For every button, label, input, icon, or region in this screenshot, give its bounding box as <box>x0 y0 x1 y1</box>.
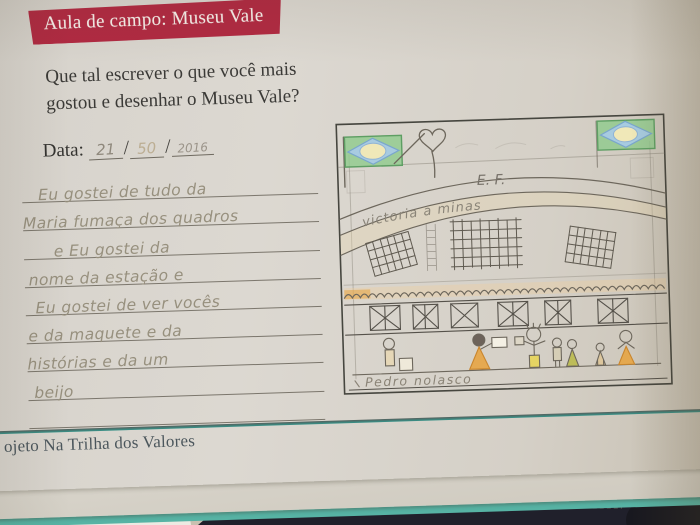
woman-orange-skirt <box>618 330 635 364</box>
person-with-box <box>383 338 413 371</box>
ladder <box>426 224 436 270</box>
date-label: Data: <box>42 139 84 161</box>
question-text: Que tal escrever o que você mais gostou … <box>45 56 300 118</box>
date-field: Data: 21/50/2016 <box>42 134 214 162</box>
brazil-flag-icon <box>343 135 403 187</box>
brazil-flag-icon <box>596 119 655 167</box>
date-year-handwritten: 2016 <box>171 140 214 157</box>
child-green-dress <box>566 339 579 366</box>
chapter-banner: Aula de campo: Museu Vale <box>28 0 282 45</box>
child-figure <box>552 338 562 367</box>
date-day-handwritten: 21 <box>88 140 123 161</box>
woman-orange-dress <box>469 333 508 369</box>
handwritten-essay: Eu gostei de tudo da Maria fumaça dos qu… <box>21 166 325 429</box>
window-grid-center <box>450 218 523 270</box>
x-window-row <box>345 293 668 335</box>
photo-of-workbook-page: Aula de campo: Museu Vale Que tal escrev… <box>0 0 700 525</box>
window-grid-right <box>565 226 616 268</box>
date-month-handwritten: 50 <box>130 139 165 160</box>
footer-project-label: ojeto Na Trilha dos Valores <box>4 431 196 457</box>
building-sign-text: E. F. <box>477 172 506 189</box>
drawing-caption: Pedro nolasco <box>365 371 473 389</box>
chapter-banner-label: Aula de campo: Museu Vale <box>43 5 264 34</box>
small-child <box>595 343 606 365</box>
man-with-camera <box>514 323 545 368</box>
child-drawing-museu-vale: E. F. victoria a minas <box>335 113 673 395</box>
arch-text: victoria a minas <box>360 198 482 230</box>
workbook-page: Aula de campo: Museu Vale Que tal escrev… <box>0 0 700 492</box>
